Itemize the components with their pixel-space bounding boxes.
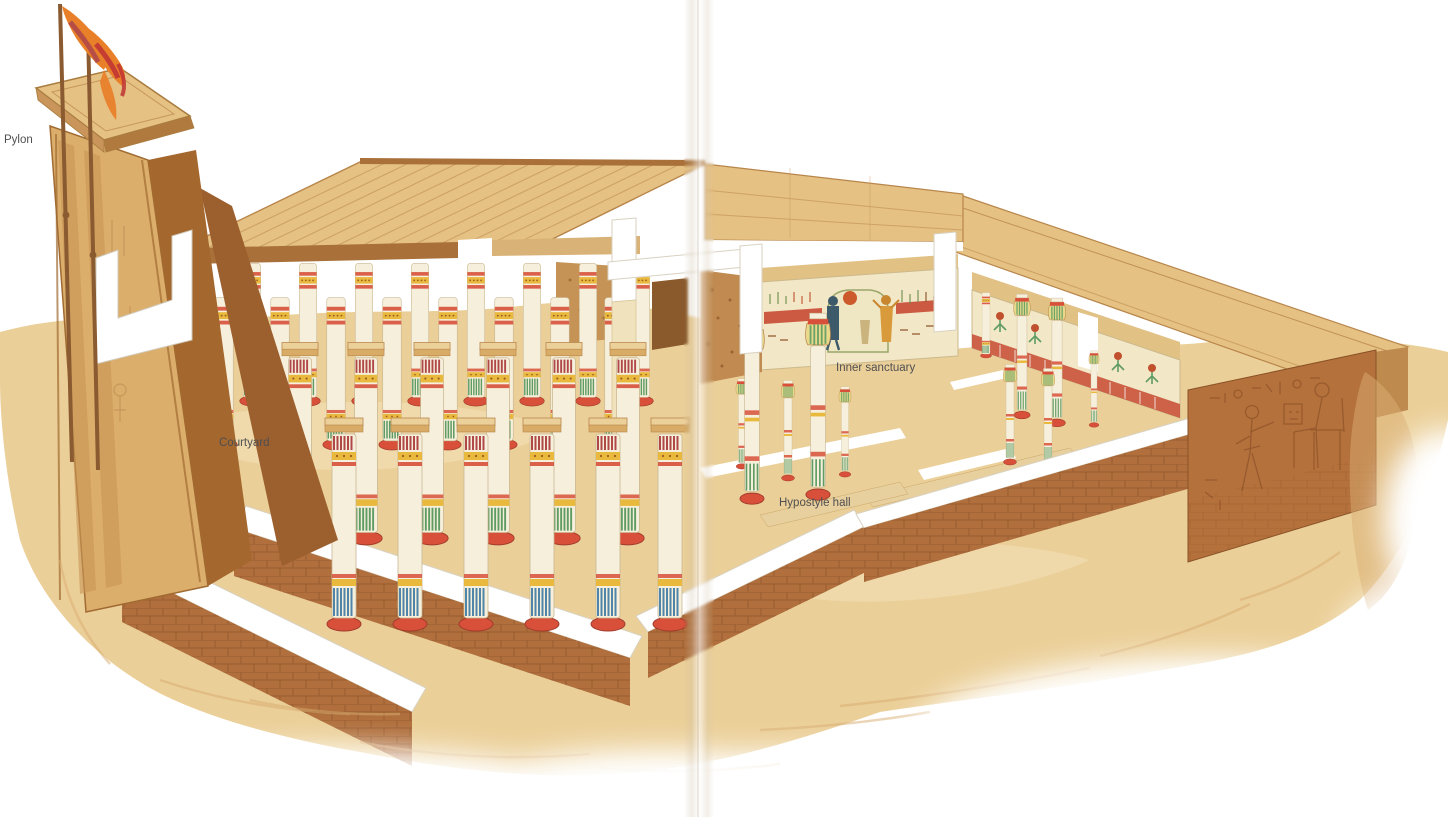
temple-cutaway-illustration: Pylon Courtyard Hypostyle hall Inner san… (0, 0, 1448, 817)
inner-sanctuary-mural (760, 254, 958, 370)
label-hypostyle-hall: Hypostyle hall (779, 497, 851, 509)
label-courtyard: Courtyard (219, 437, 270, 449)
label-inner-sanctuary: Inner sanctuary (836, 362, 916, 374)
inner-roof (705, 164, 963, 251)
book-page: Pylon Courtyard Hypostyle hall Inner san… (0, 0, 1448, 817)
label-pylon: Pylon (4, 134, 33, 146)
